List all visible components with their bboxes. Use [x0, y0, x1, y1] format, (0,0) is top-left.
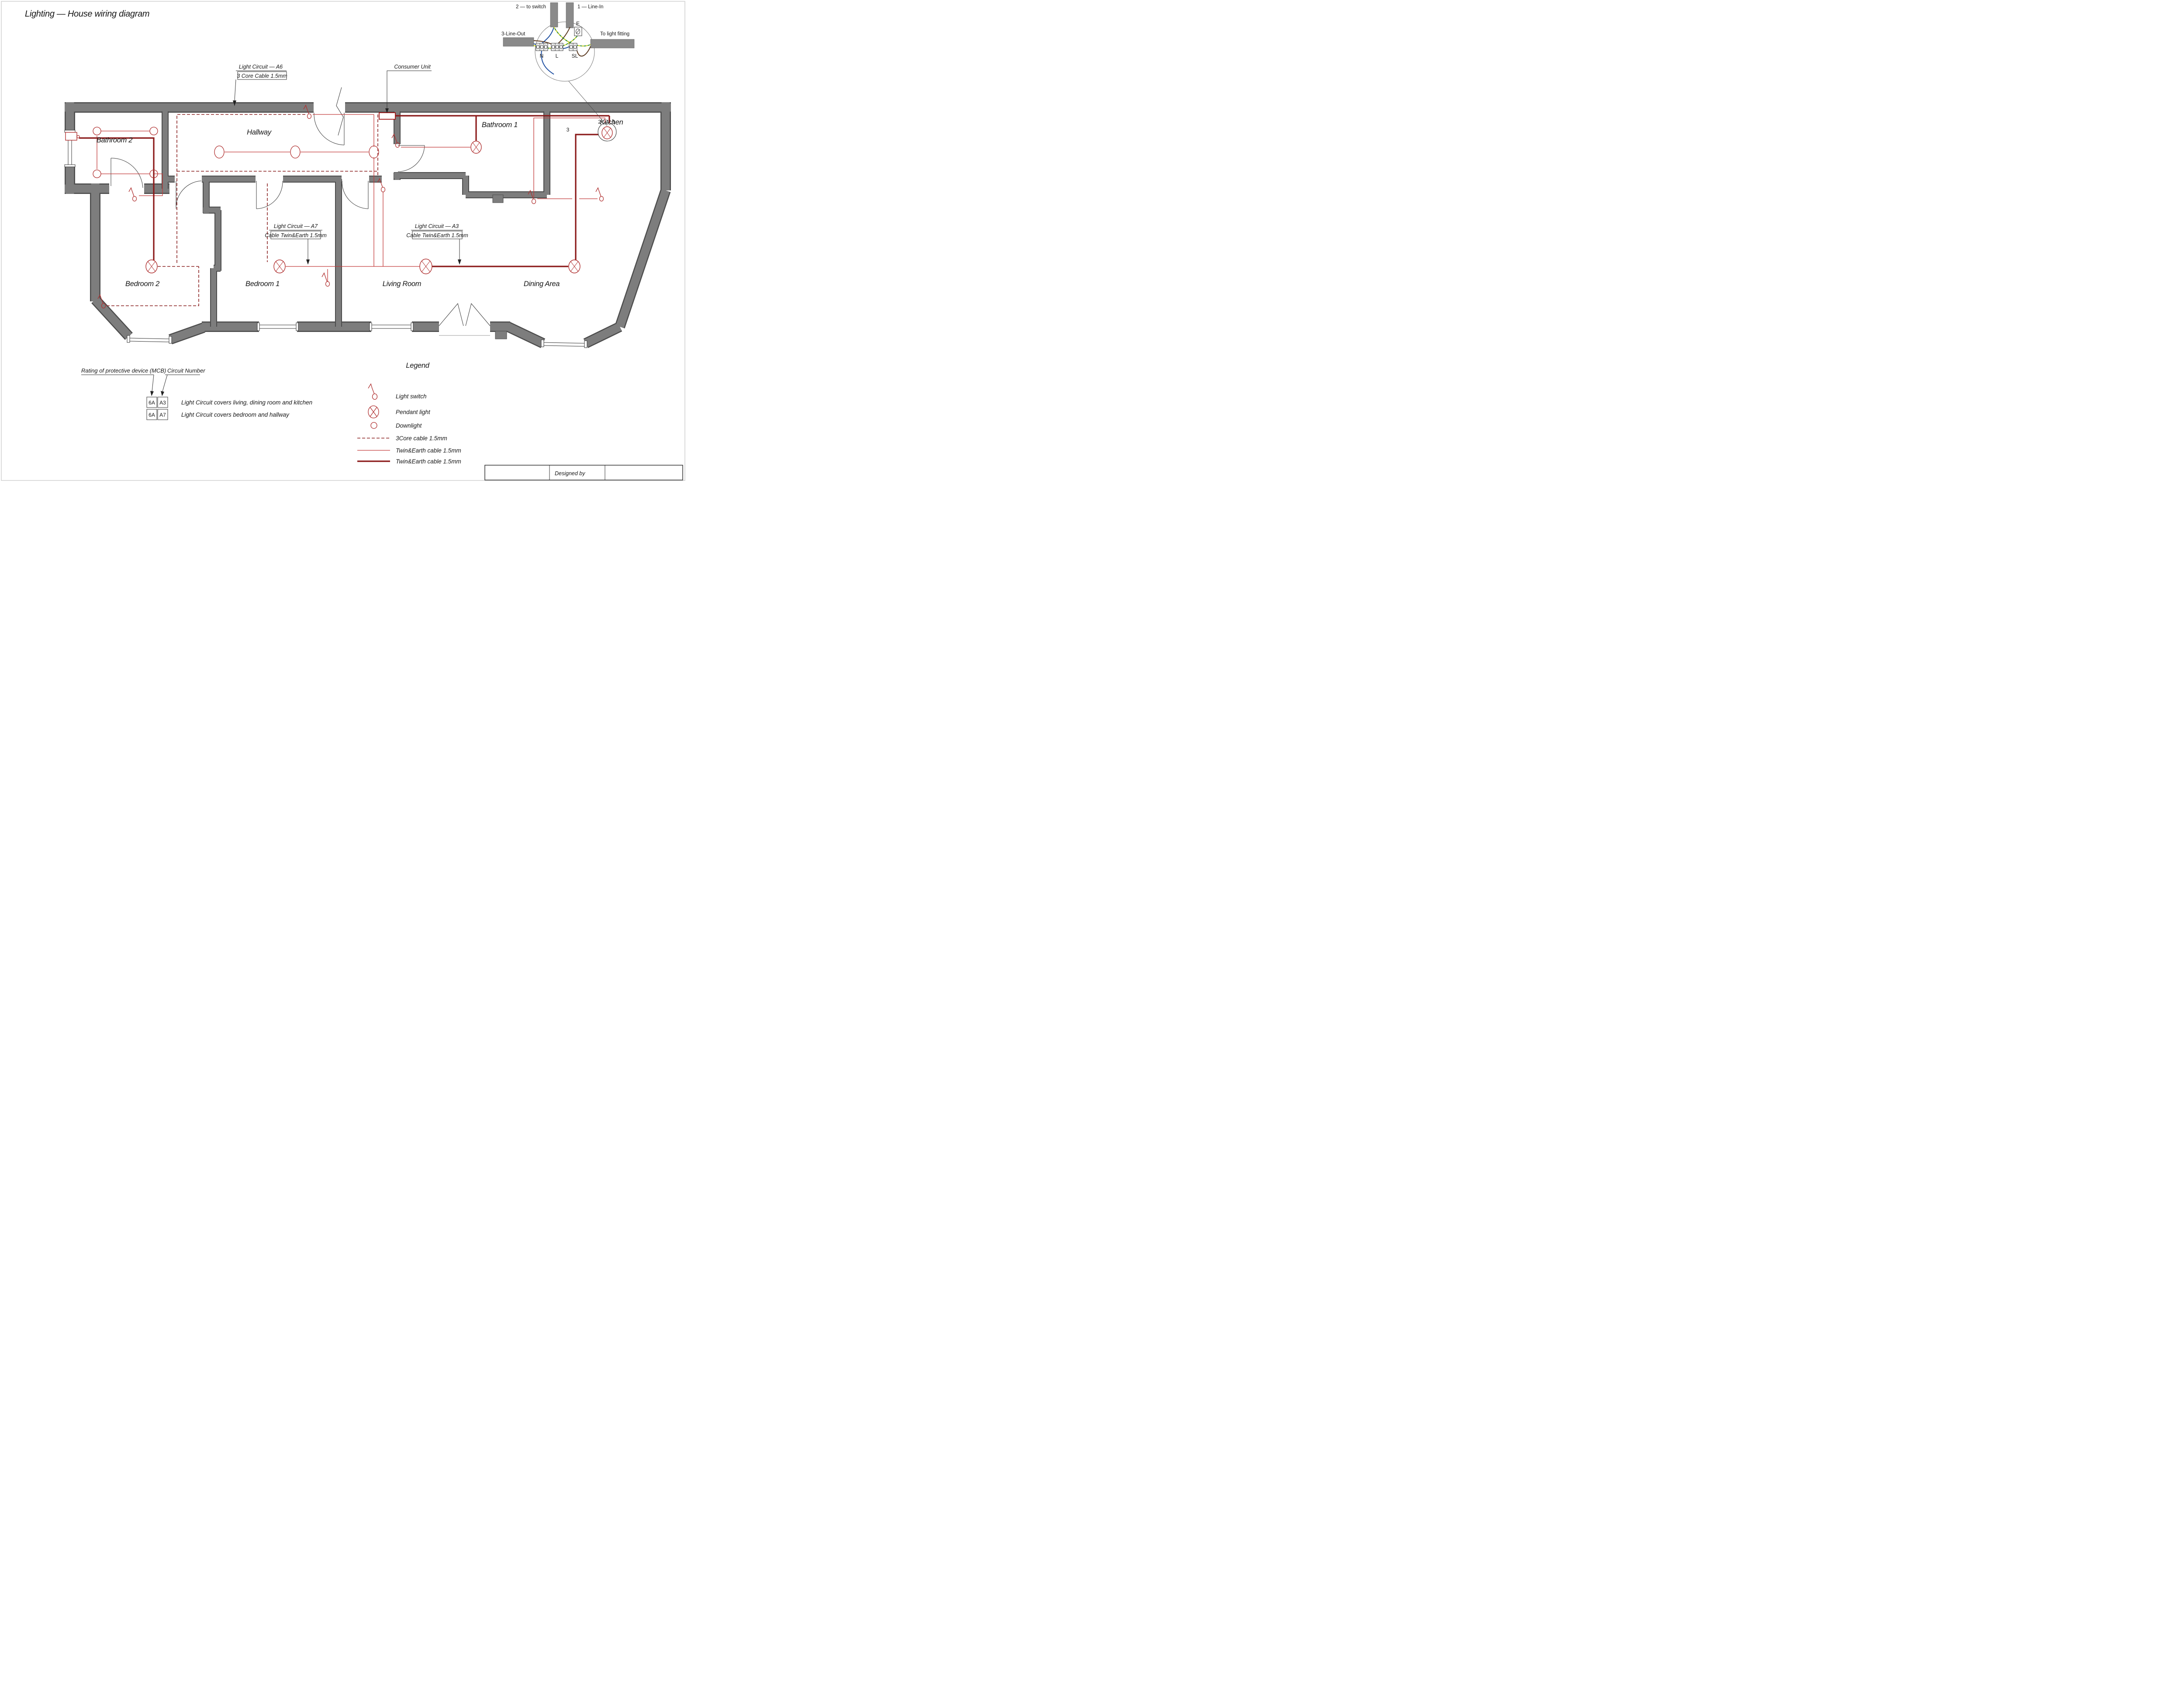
downlight-icon	[93, 127, 101, 135]
title-block: Designed by	[485, 465, 683, 480]
wiring-diagram-canvas: Lighting — House wiring diagram	[0, 0, 686, 482]
room-label-bathroom2: Bathroom 2	[97, 136, 132, 144]
window-bedroom1	[257, 322, 298, 331]
arrowhead	[161, 391, 164, 396]
light-switches	[98, 105, 604, 308]
light-switch-icon	[368, 384, 377, 400]
pendant-light-icon	[368, 406, 379, 418]
window-bay-right	[541, 340, 587, 348]
room-label-kitchen: Kitchen	[600, 118, 623, 126]
pendant-light-bathroom1	[471, 141, 481, 153]
legend-item-label: Twin&Earth cable 1.5mm	[396, 447, 461, 454]
terminal-label-n: N	[540, 53, 544, 59]
legend-item-label: Pendant light	[396, 409, 431, 415]
windows	[64, 130, 587, 348]
terminal-label-e: E	[576, 21, 580, 27]
arrowhead	[458, 259, 461, 265]
door-bedroom2	[176, 181, 201, 209]
room-label-bedroom1: Bedroom 1	[245, 280, 280, 288]
mcb-block: Rating of protective device (MCB) Circui…	[81, 367, 312, 420]
pendant-light-bedroom1	[274, 260, 285, 273]
pendant-light-living	[420, 259, 432, 274]
room-label-dining: Dining Area	[524, 280, 560, 288]
room-label-hallway: Hallway	[247, 128, 272, 136]
rose-label-to-light: To light fitting	[600, 31, 629, 37]
terminal-label-sl: SL	[572, 53, 578, 59]
door-living	[342, 181, 368, 209]
light-switch-icon	[129, 188, 137, 201]
mcb-rating-header: Rating of protective device (MCB)	[81, 367, 166, 374]
mcb-rating-value: 6A	[149, 400, 155, 406]
light-switch-icon	[322, 273, 330, 287]
door-bathroom1	[398, 145, 425, 172]
rose-label-line-out: 3-Line-Out	[501, 31, 525, 37]
callout-a6: Light Circuit — A6 3 Core Cable 1.5mm	[233, 64, 287, 106]
arrowhead	[306, 259, 310, 265]
designed-by-label: Designed by	[555, 470, 585, 477]
downlight-icon	[93, 170, 101, 178]
page-title: Lighting — House wiring diagram	[25, 9, 149, 19]
wall-break-symbol	[336, 87, 343, 135]
pendant-light-bedroom2	[146, 260, 157, 273]
door-bathroom2	[111, 158, 143, 188]
room-label-bedroom2: Bedroom 2	[125, 280, 159, 288]
terminal-label-l: L	[556, 53, 559, 59]
callout-a7-title: Light Circuit — A7	[274, 223, 318, 229]
walls-outer	[65, 102, 671, 343]
downlight-icon	[214, 146, 224, 158]
downlight-icon	[369, 146, 379, 158]
drawing-page: Lighting — House wiring diagram	[0, 0, 686, 482]
callout-a3-sub: Cable Twin&Earth 1.5mm	[406, 232, 468, 238]
wire-number-3: 3	[567, 127, 570, 133]
rose-label-to-switch: 2 — to switch	[516, 4, 546, 10]
light-switch-icon	[596, 188, 604, 201]
mcb-circuit-value: A3	[159, 400, 166, 406]
mcb-rating-value: 6A	[149, 412, 155, 418]
door-french-double	[439, 304, 490, 335]
downlight-icon	[290, 146, 300, 158]
downlight-icon	[150, 127, 158, 135]
downlight-icon	[371, 422, 377, 428]
window-living	[370, 322, 413, 331]
mcb-description-a3: Light Circuit covers living, dining room…	[181, 399, 312, 406]
legend: Legend Light switch Pendant light Downli…	[357, 362, 461, 465]
mcb-description-a7: Light Circuit covers bedroom and hallway	[181, 411, 290, 418]
callout-a3-title: Light Circuit — A3	[415, 223, 459, 229]
callout-a6-title: Light Circuit — A6	[239, 64, 283, 70]
room-label-bathroom1: Bathroom 1	[482, 121, 518, 129]
walls-interior	[165, 111, 547, 339]
arrowhead	[150, 391, 154, 396]
legend-item-label: Twin&Earth cable 1.5mm	[396, 458, 461, 465]
bathroom2-wall-point	[66, 132, 79, 140]
callout-a7-sub: Cable Twin&Earth 1.5mm	[265, 232, 327, 238]
mcb-circuit-value: A7	[159, 412, 166, 418]
legend-title: Legend	[406, 362, 429, 370]
window-bay-left	[127, 335, 172, 343]
consumer-unit	[379, 113, 395, 119]
mcb-circuit-header: Circuit Number	[167, 367, 205, 374]
downlights	[93, 127, 379, 178]
callout-cu-title: Consumer Unit	[394, 64, 431, 70]
rose-label-line-in: 1 — Line-In	[577, 4, 603, 10]
pendant-light-dining	[569, 260, 580, 273]
legend-item-label: 3Core cable 1.5mm	[396, 435, 447, 442]
callout-a6-sub: 3 Core Cable 1.5mm	[237, 73, 287, 79]
legend-item-label: Light switch	[396, 393, 427, 400]
room-label-living: Living Room	[383, 280, 421, 288]
wall-pier	[495, 331, 507, 339]
callout-a7: Light Circuit — A7 Cable Twin&Earth 1.5m…	[265, 223, 327, 265]
callout-a3: Light Circuit — A3 Cable Twin&Earth 1.5m…	[406, 223, 468, 265]
legend-item-label: Downlight	[396, 422, 422, 429]
wall-pier	[493, 195, 503, 203]
door-front	[314, 113, 344, 145]
door-bedroom1	[256, 181, 283, 209]
